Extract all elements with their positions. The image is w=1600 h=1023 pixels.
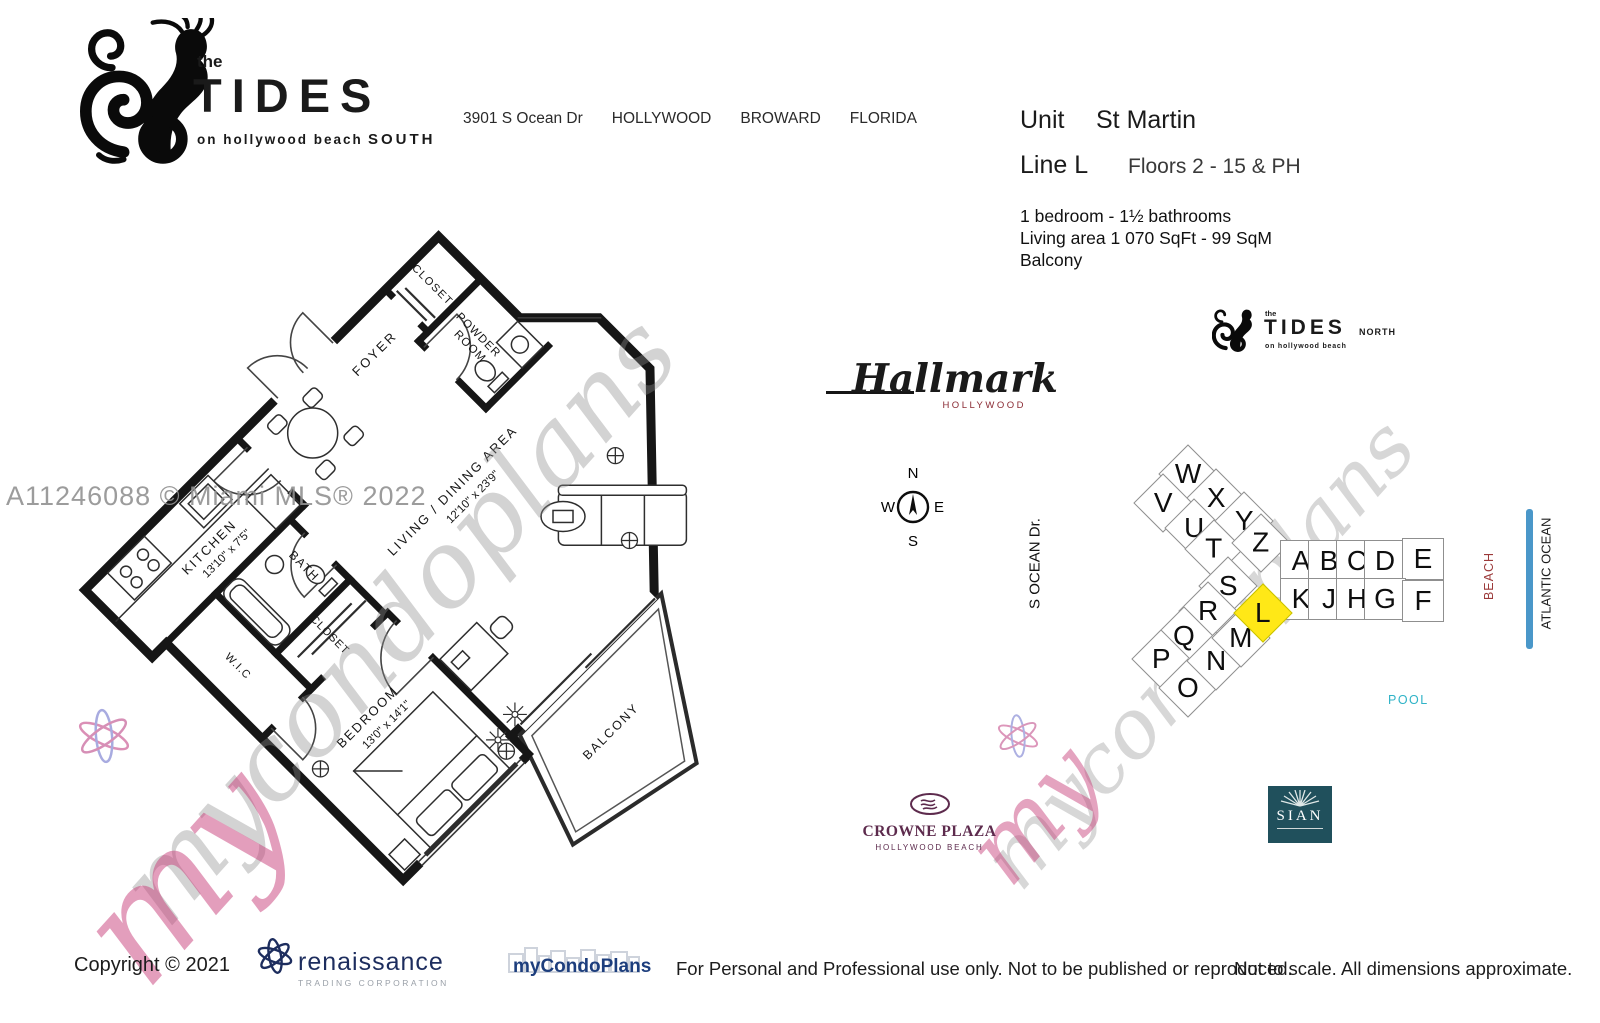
compass-needle-icon — [909, 494, 917, 515]
hallmark-logo: Hallmark HOLLYWOOD — [840, 356, 1030, 420]
hallmark-name: Hallmark — [852, 356, 1058, 402]
beach-label: BEACH — [1482, 541, 1496, 611]
mycondoplans-logo: myCondoPlans — [505, 942, 655, 982]
hallmark-sub: HOLLYWOOD — [942, 400, 1026, 411]
compass-n: N — [908, 465, 919, 482]
crowne-plaza-icon — [908, 792, 952, 816]
atlantic-ocean-label: ATLANTIC OCEAN — [1539, 514, 1554, 634]
tides-north-logo: the TIDES NORTH on hollywood beach — [1212, 298, 1392, 362]
crowne-plaza-sub: HOLLYWOOD BEACH — [862, 843, 997, 852]
usage-disclaimer: For Personal and Professional use only. … — [676, 958, 1293, 980]
copyright-text: Copyright © 2021 — [74, 954, 230, 977]
tides-south-logo: the TIDES on hollywood beach SOUTH — [80, 12, 440, 162]
compass-s: S — [908, 533, 918, 548]
shoreline-bar — [1526, 509, 1533, 649]
renaissance-name: renaissance — [298, 948, 449, 977]
logo-tagline: on hollywood beach — [197, 132, 363, 147]
unit-cell-f: F — [1402, 580, 1444, 622]
address-county: BROWARD — [740, 110, 820, 128]
floors-range: Floors 2 - 15 & PH — [1128, 155, 1301, 179]
watermark-mls: A11246088 © Miami MLS® 2022 — [6, 481, 427, 512]
living-area-info: Living area 1 070 SqFt - 99 SqM — [1020, 228, 1272, 249]
unit-label: Unit — [1020, 106, 1064, 135]
bed-bath-info: 1 bedroom - 1½ bathrooms — [1020, 206, 1231, 227]
sian-fan-icon — [1279, 790, 1321, 807]
logo-region: NORTH — [1359, 327, 1396, 337]
address-street: 3901 S Ocean Dr — [463, 110, 583, 128]
floor-plan: FOYER CLOSET POWDER ROOM KITCHEN 13'10" … — [70, 225, 720, 905]
sian-rule — [1277, 828, 1323, 829]
unit-cell-g: G — [1364, 578, 1406, 620]
compass-w: W — [881, 499, 896, 516]
address-state: FLORIDA — [850, 110, 917, 128]
logo-tagline: on hollywood beach — [1265, 343, 1347, 350]
unit-cell-e: E — [1402, 538, 1444, 580]
crowne-plaza-logo: CROWNE PLAZA HOLLYWOOD BEACH — [862, 792, 997, 852]
renaissance-logo: renaissance TRADING CORPORATION — [252, 930, 449, 988]
street-label: S OCEAN Dr. — [1027, 504, 1044, 624]
sian-name: SIAN — [1276, 808, 1323, 825]
trefoil-watermark-icon — [72, 706, 136, 766]
compass-rose: N W E S — [878, 462, 948, 548]
compass-e: E — [934, 499, 944, 516]
line-label: Line L — [1020, 151, 1088, 180]
scale-disclaimer: Not to scale. All dimensions approximate… — [1234, 958, 1572, 980]
address-city: HOLLYWOOD — [612, 110, 712, 128]
renaissance-knot-icon — [252, 930, 298, 980]
unit-cell-d: D — [1364, 540, 1406, 582]
mermaid-icon — [1212, 298, 1262, 360]
mycondoplans-name: myCondoPlans — [513, 956, 651, 978]
logo-name: TIDES — [1264, 316, 1346, 340]
address-row: 3901 S Ocean Dr HOLLYWOOD BROWARD FLORID… — [463, 110, 917, 128]
pool-label: POOL — [1388, 693, 1429, 707]
balcony-info: Balcony — [1020, 250, 1082, 271]
logo-region: SOUTH — [368, 131, 436, 148]
sian-logo: SIAN — [1268, 786, 1332, 843]
trefoil-watermark-icon — [992, 712, 1044, 760]
renaissance-sub: TRADING CORPORATION — [298, 978, 449, 988]
crowne-plaza-name: CROWNE PLAZA — [862, 823, 997, 841]
logo-name: TIDES — [193, 68, 381, 123]
unit-name: St Martin — [1096, 106, 1196, 135]
